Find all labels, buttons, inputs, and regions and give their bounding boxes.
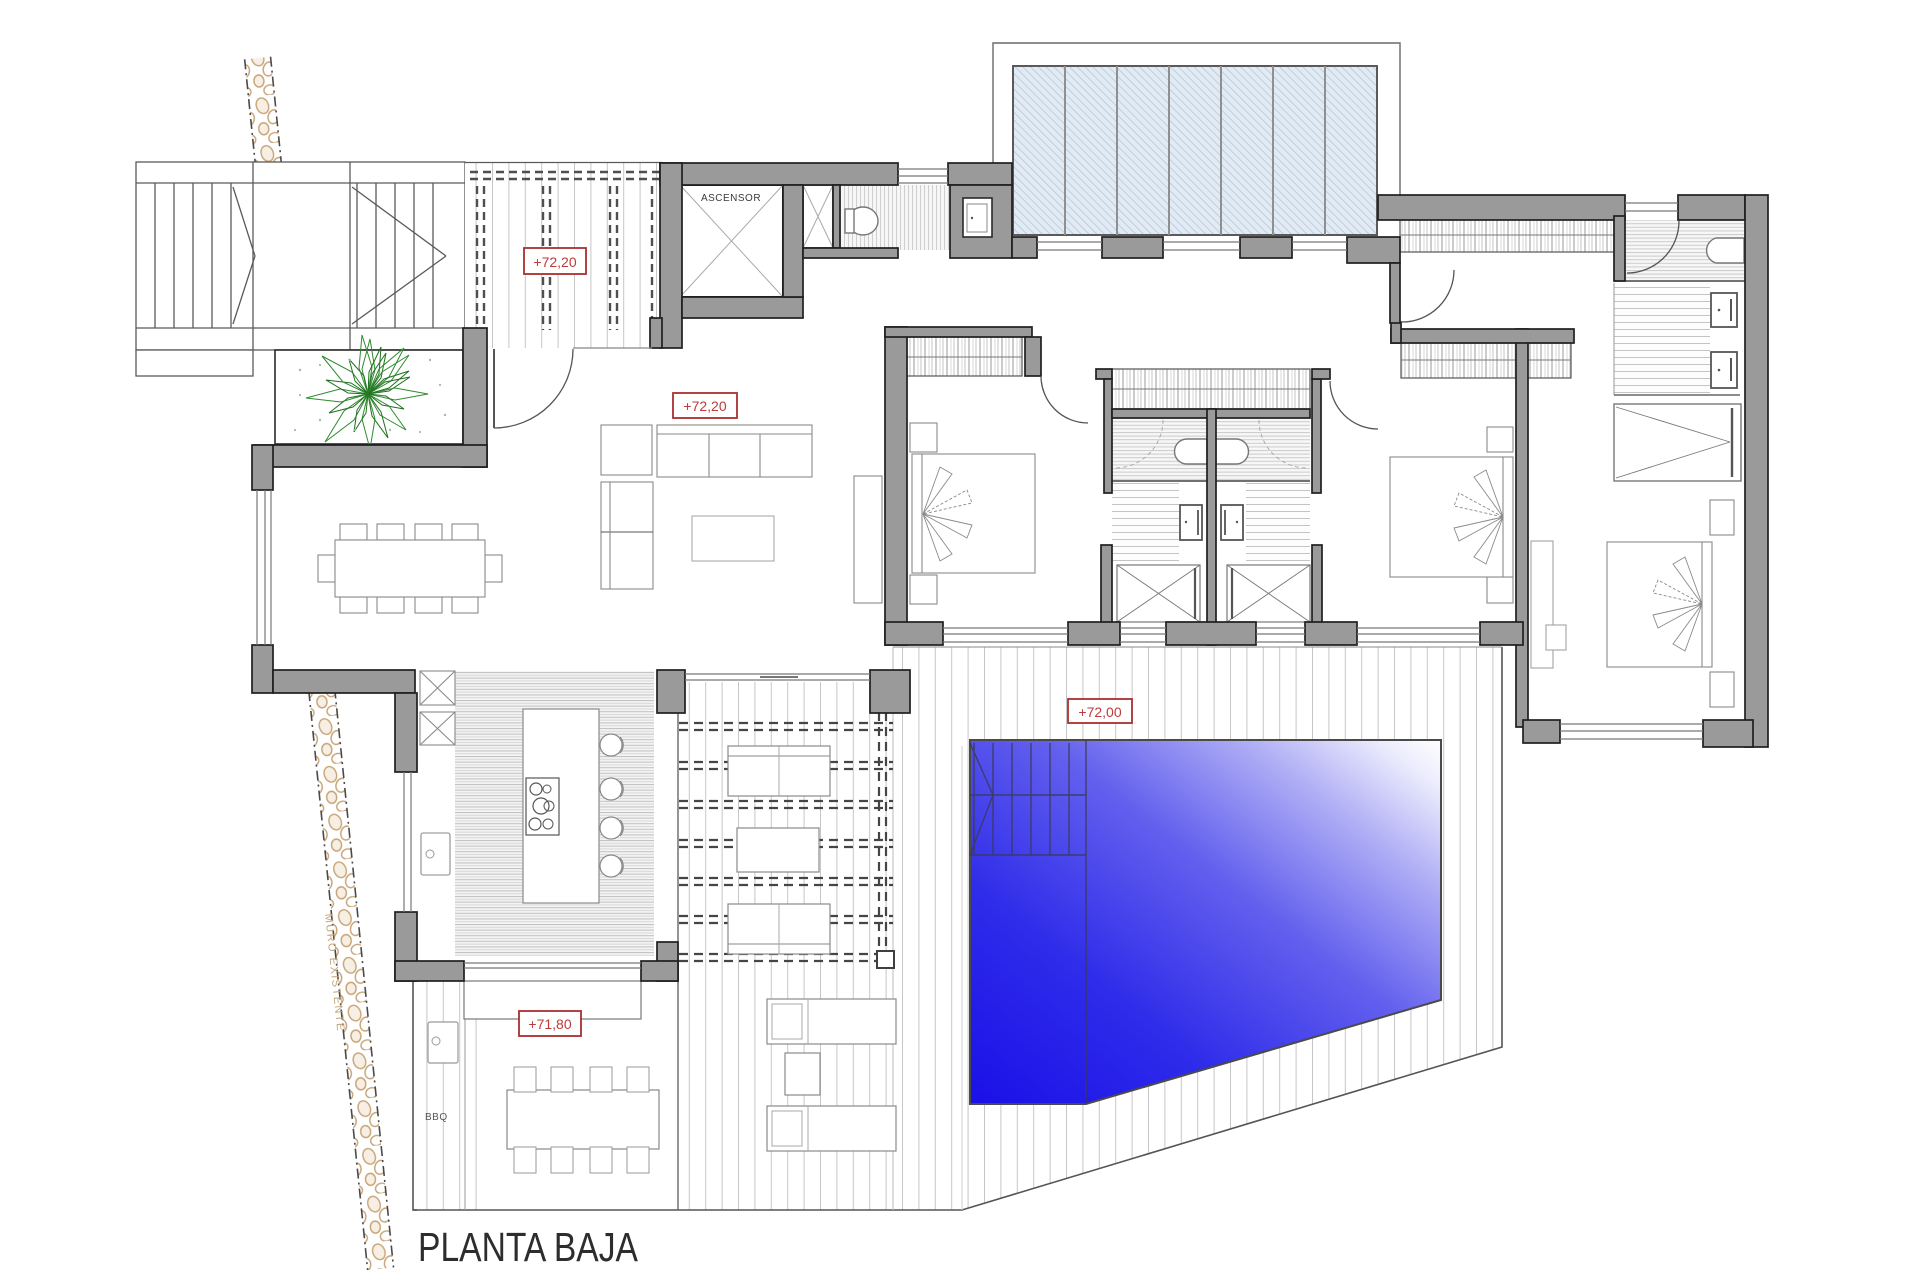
- svg-text:ASCENSOR: ASCENSOR: [701, 193, 761, 204]
- svg-text:BBQ: BBQ: [425, 1112, 448, 1123]
- svg-text:+72,20: +72,20: [683, 398, 726, 414]
- svg-text:+72,00: +72,00: [1078, 704, 1121, 720]
- svg-text:PLANTA BAJA: PLANTA BAJA: [418, 1224, 639, 1270]
- svg-text:+71,80: +71,80: [528, 1016, 571, 1032]
- svg-text:+72,20: +72,20: [533, 254, 576, 270]
